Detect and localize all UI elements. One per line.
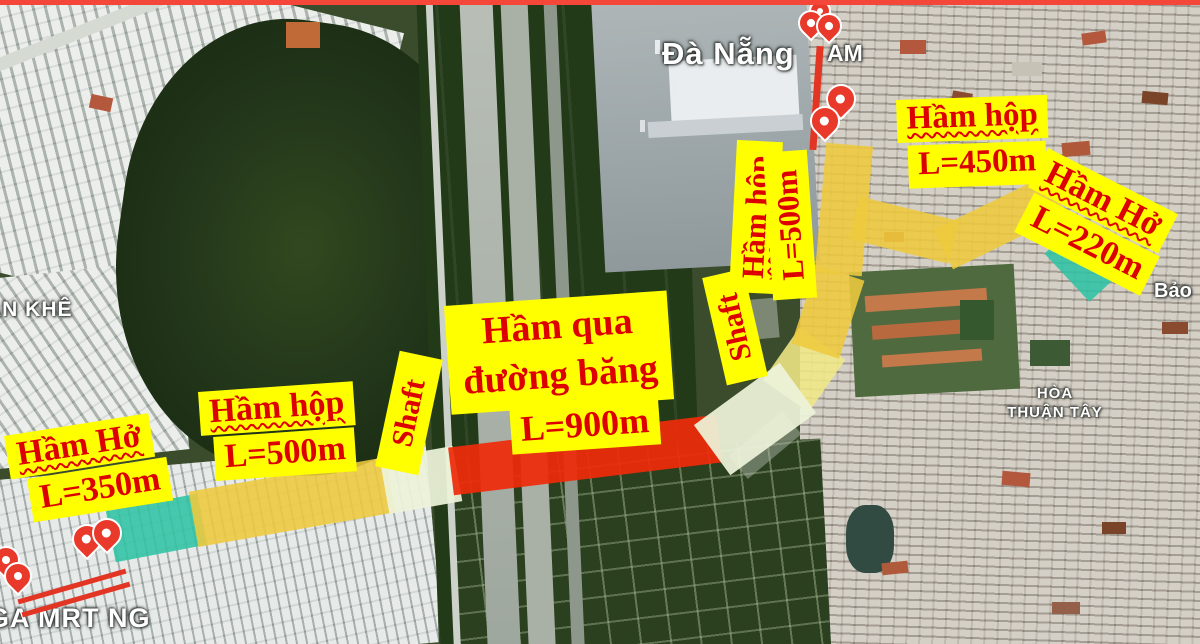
annotation-name-box: Hầm hộp xyxy=(896,95,1049,143)
place-label-city[interactable]: Đà Nẵng xyxy=(662,36,795,72)
map-top-border xyxy=(0,0,1200,5)
annotation-name-box: Hầm hộp xyxy=(198,381,356,436)
place-label-bao: Bảo xyxy=(1154,280,1192,303)
place-label-station-am[interactable]: AM xyxy=(827,40,863,67)
map-texture-block xyxy=(900,40,926,54)
annotation-length-box: L=450m xyxy=(908,141,1047,189)
map-texture-block xyxy=(960,300,994,340)
map-texture-block xyxy=(655,40,660,54)
place-label-line: THUẬN TÂY xyxy=(990,403,1120,422)
map-texture-block xyxy=(1061,141,1090,157)
annotation-text: Hầm hộp xyxy=(208,384,345,430)
map-texture-block xyxy=(1142,91,1169,105)
place-label-an-khe: AN KHÊ xyxy=(0,298,73,322)
map-texture-block xyxy=(640,120,645,132)
annotation-ham-hop-west: Hầm hộp L=500m xyxy=(198,381,359,482)
map-texture-block xyxy=(1102,522,1126,534)
satellite-map[interactable]: Đà Nẵng AM AN KHÊ Bảo HÒA THUẬN TÂY GA M… xyxy=(0,0,1200,644)
map-texture-block xyxy=(1001,471,1030,487)
place-label-ga-mrt: GA MRT NG xyxy=(0,603,150,634)
annotation-text: Hầm hộp xyxy=(906,96,1038,137)
map-texture-block xyxy=(672,80,677,94)
annotation-ham-hop-east: Hầm hộp L=450m xyxy=(896,95,1050,189)
map-texture-block xyxy=(1162,322,1188,334)
map-texture-block xyxy=(1012,62,1042,76)
annotation-name-box: Hầm qua đường băng xyxy=(444,290,674,414)
map-texture-block xyxy=(1030,340,1070,366)
place-label-line: HÒA xyxy=(990,384,1120,403)
map-texture-block xyxy=(1052,602,1080,614)
place-label-hoa-thuan-tay: HÒA THUẬN TÂY xyxy=(990,384,1120,422)
annotation-ham-qua-duong-bang: Hầm qua đường băng L=900m xyxy=(444,290,677,458)
map-texture-block xyxy=(286,22,320,48)
